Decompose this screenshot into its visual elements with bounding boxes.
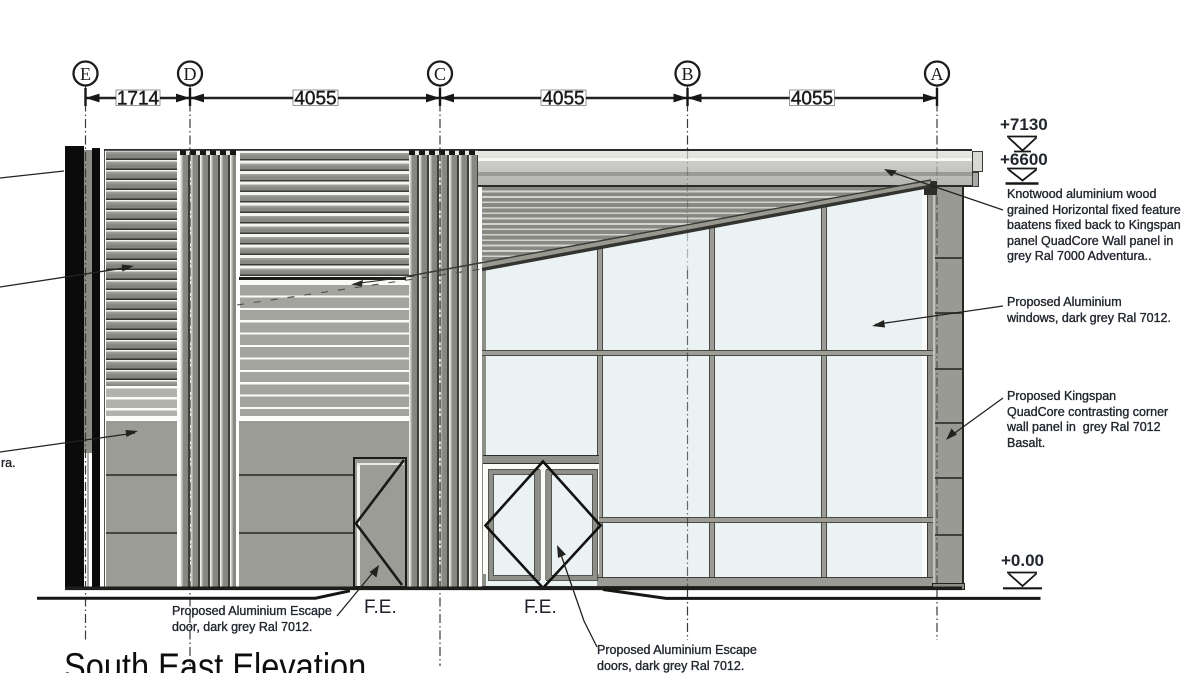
svg-text:D: D [184,64,197,84]
svg-text:4055: 4055 [791,89,833,110]
svg-text:4055: 4055 [542,89,584,110]
svg-text:4055: 4055 [294,89,336,110]
svg-text:C: C [434,64,446,84]
svg-text:A: A [931,64,944,84]
svg-text:1714: 1714 [117,89,160,110]
svg-text:E: E [80,64,91,84]
svg-text:B: B [681,64,693,84]
